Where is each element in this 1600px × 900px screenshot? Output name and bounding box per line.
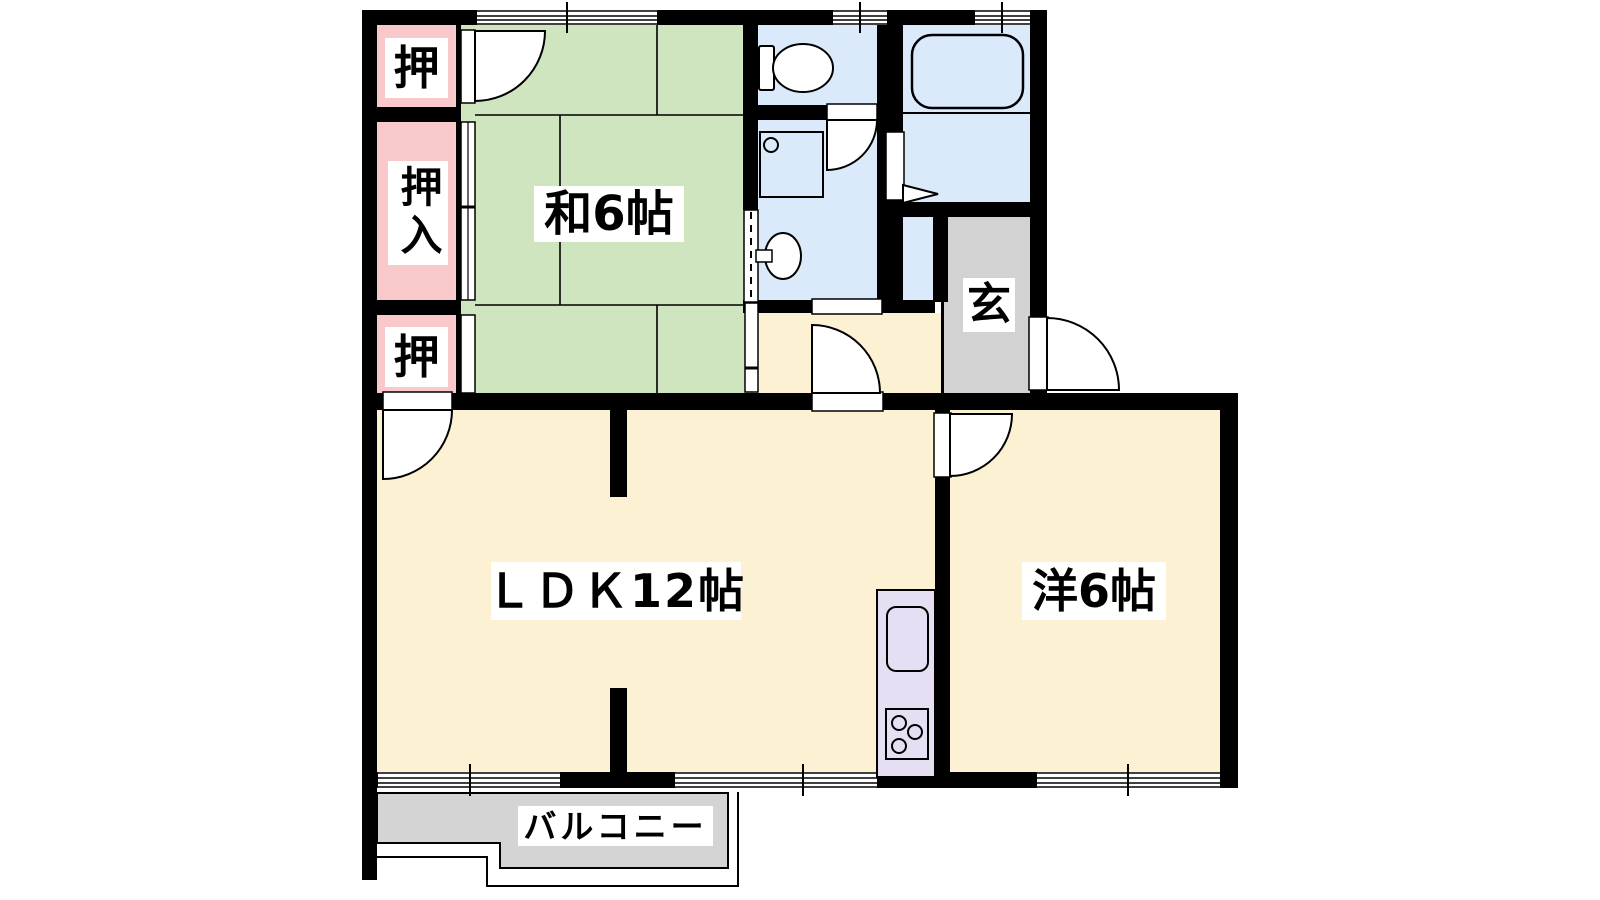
room-label-closet-bottom: 押 bbox=[385, 327, 448, 387]
room-label-tatami: 和6帖 bbox=[534, 186, 684, 242]
room-label-genkan: 玄 bbox=[963, 278, 1015, 332]
fusuma-closet-top bbox=[461, 30, 475, 103]
toilet-fixture bbox=[759, 44, 833, 92]
floor-plan-canvas: 押 押入 押 和6帖 玄 ＬＤＫ12帖 洋6帖 バルコニー bbox=[0, 0, 1600, 900]
closet-door-opening bbox=[383, 392, 452, 411]
hall-ldk-door-opening bbox=[812, 392, 883, 411]
bathroom-floor bbox=[903, 25, 1030, 217]
room-label-ldk: ＬＤＫ12帖 bbox=[491, 562, 741, 620]
toilet-door-opening bbox=[827, 104, 877, 121]
floor-plan-drawing bbox=[0, 0, 1600, 900]
fusuma-tatami-hall bbox=[745, 303, 758, 392]
kitchen-counter bbox=[877, 590, 935, 777]
western-door-opening bbox=[934, 413, 951, 477]
room-label-western: 洋6帖 bbox=[1022, 562, 1166, 620]
front-door-swing bbox=[1047, 318, 1119, 390]
room-label-closet-top: 押 bbox=[385, 38, 448, 98]
fusuma-closet-bottom bbox=[461, 315, 475, 393]
front-door-opening bbox=[1029, 317, 1048, 390]
room-label-closet-middle: 押入 bbox=[388, 161, 448, 265]
washroom-opening bbox=[812, 299, 882, 314]
room-label-balcony: バルコニー bbox=[518, 806, 713, 846]
bath-door-opening bbox=[886, 132, 904, 200]
